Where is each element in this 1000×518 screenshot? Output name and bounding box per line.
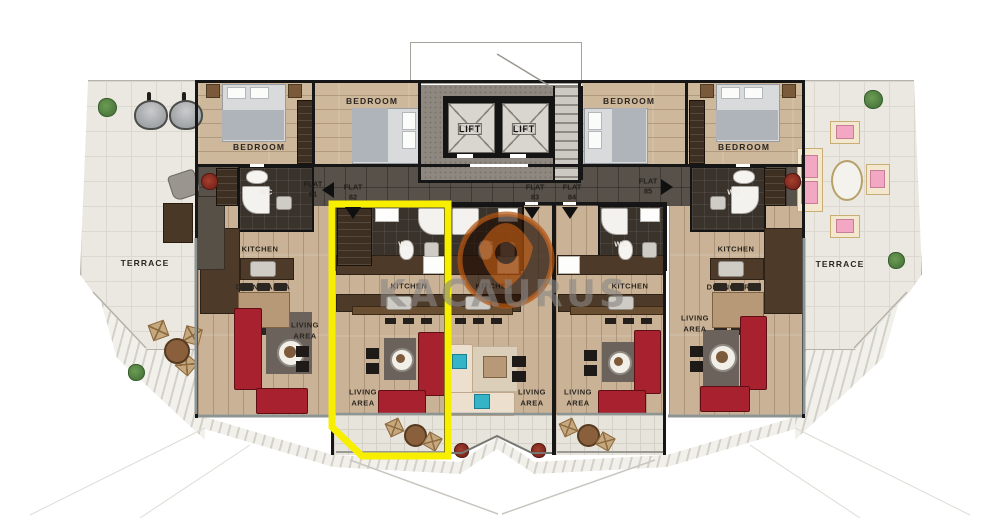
entrance-arrow-flat84-icon [562,207,578,219]
room-label-wc: WC [259,188,273,197]
flat-label-number: 84 [563,192,582,202]
room-label-wc: WC [614,240,628,249]
flat-label-number: 83 [526,192,545,202]
flat-label-name: FLAT [526,182,545,192]
entrance-arrow-flat82-icon [345,207,361,219]
room-label-living: LIVING AREA [337,388,389,409]
room-label-living: LIVING AREA [552,388,604,409]
balcony-prow-edge [449,436,552,453]
entrance-arrow-flat85-icon [661,179,673,195]
room-label-living: LIVING AREA [506,388,558,409]
flat-label-83: FLAT 83 [526,182,545,202]
room-label-kitchen: KITCHEN [242,245,279,254]
deck-line [350,460,498,514]
room-label-bedroom: BEDROOM [233,142,285,152]
flat-label-81: FLAT 81 [304,179,323,199]
terrace-label: TERRACE [121,258,170,268]
room-label-bedroom: BEDROOM [346,96,398,106]
room-label-wc: WC [727,188,741,197]
room-label-living: LIVING AREA [279,321,331,342]
room-label-kitchen: KITCHEN [718,245,755,254]
terrace-label: TERRACE [816,259,865,269]
flat-label-number: 85 [639,186,658,196]
lift-label: LIFT [458,123,482,135]
room-label-dining: DINING AREA [707,283,762,292]
flat-label-name: FLAT [304,179,323,189]
terrace-edge [854,292,907,348]
room-label-wc: WC [398,240,412,249]
flat-label-82: FLAT 82 [344,182,363,202]
flat-label-84: FLAT 84 [563,182,582,202]
deck-line [750,445,860,518]
flat-label-name: FLAT [344,182,363,192]
flat-label-85: FLAT 85 [639,176,658,196]
terrace-edge [93,292,146,348]
floorplan-canvas: LIFT LIFT [0,0,1000,518]
deck-line [795,428,970,515]
room-label-bedroom: BEDROOM [603,96,655,106]
watermark-text: KACAURUS [377,273,628,316]
room-label-bedroom: BEDROOM [718,142,770,152]
deck-line [140,445,250,518]
flat-label-number: 81 [304,189,323,199]
room-label-living: LIVING AREA [669,314,721,335]
deck-line [30,428,205,515]
flat-label-number: 82 [344,192,363,202]
deck-line [502,460,655,514]
selected-flat-outline[interactable] [332,204,448,456]
lift-label: LIFT [512,123,536,135]
flat-label-name: FLAT [639,176,658,186]
entrance-arrow-flat81-icon [322,182,334,198]
roof-ridge-line [497,54,553,88]
room-label-dining: DINING AREA [236,283,291,292]
flat-label-name: FLAT [563,182,582,192]
